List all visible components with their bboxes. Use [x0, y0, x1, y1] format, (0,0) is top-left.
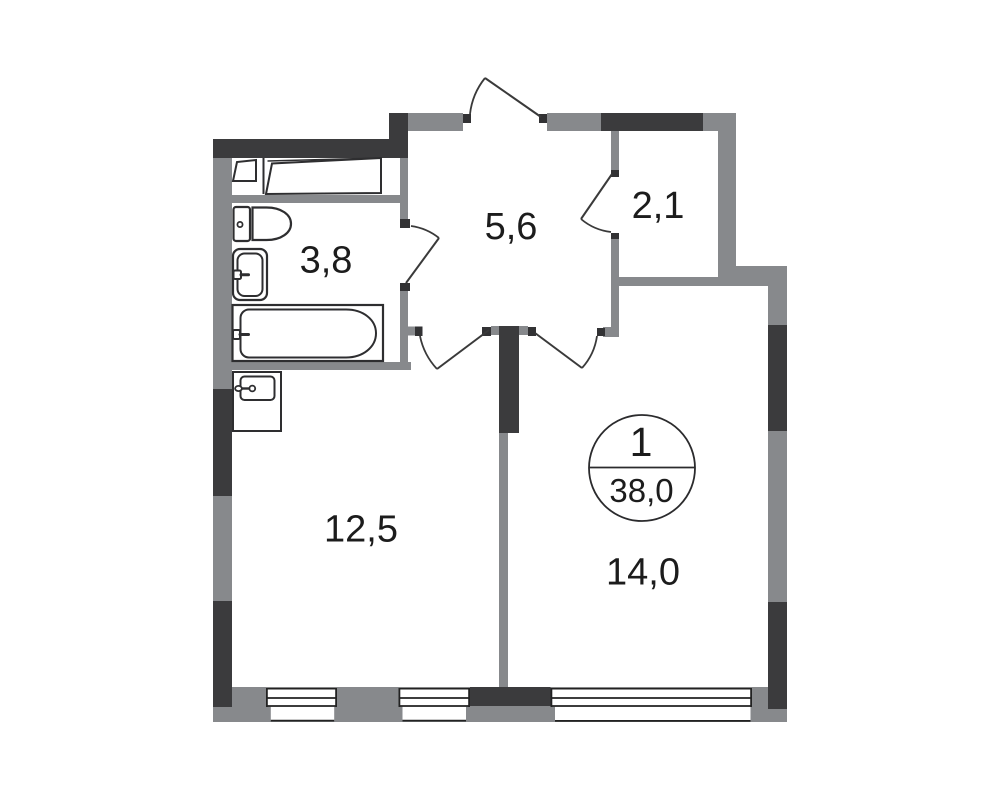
svg-text:14,0: 14,0	[606, 552, 680, 594]
svg-text:38,0: 38,0	[609, 472, 673, 509]
svg-text:1: 1	[630, 419, 653, 465]
svg-text:2,1: 2,1	[632, 185, 685, 227]
svg-text:5,6: 5,6	[485, 206, 538, 248]
svg-text:3,8: 3,8	[300, 240, 353, 282]
svg-text:12,5: 12,5	[324, 509, 398, 551]
